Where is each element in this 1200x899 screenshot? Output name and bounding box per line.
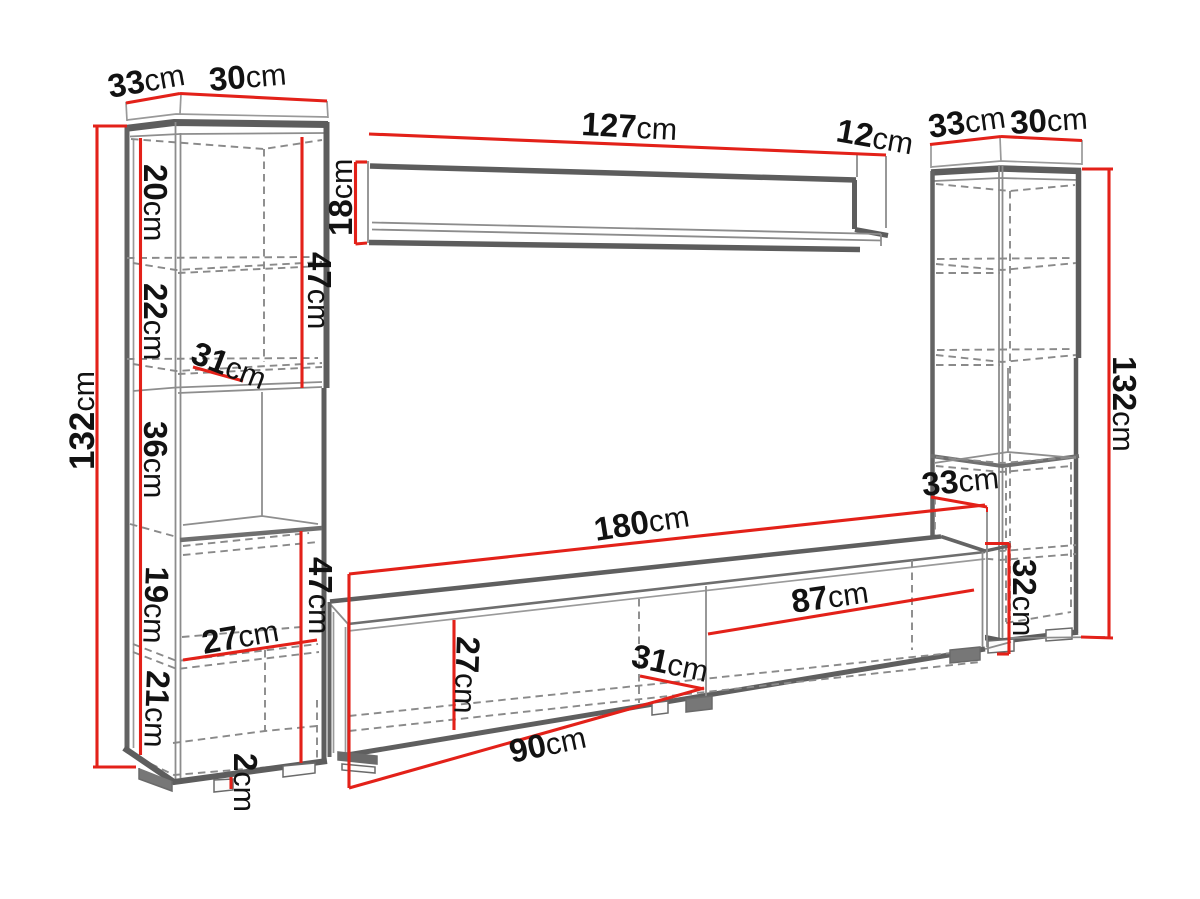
svg-text:30cm: 30cm	[1009, 99, 1089, 141]
svg-text:22cm: 22cm	[137, 283, 174, 360]
svg-text:2cm: 2cm	[227, 753, 264, 812]
svg-text:32cm: 32cm	[1006, 559, 1043, 636]
svg-text:30cm: 30cm	[207, 54, 287, 98]
svg-text:20cm: 20cm	[137, 164, 174, 241]
svg-text:36cm: 36cm	[137, 421, 174, 498]
svg-text:132cm: 132cm	[1106, 356, 1143, 452]
svg-text:47cm: 47cm	[301, 252, 338, 329]
svg-text:19cm: 19cm	[136, 566, 176, 645]
svg-text:21cm: 21cm	[137, 670, 177, 749]
svg-text:127cm: 127cm	[581, 105, 679, 147]
svg-text:27cm: 27cm	[447, 636, 487, 715]
svg-text:18cm: 18cm	[322, 159, 359, 236]
svg-text:132cm: 132cm	[63, 371, 102, 470]
svg-text:47cm: 47cm	[302, 557, 339, 634]
